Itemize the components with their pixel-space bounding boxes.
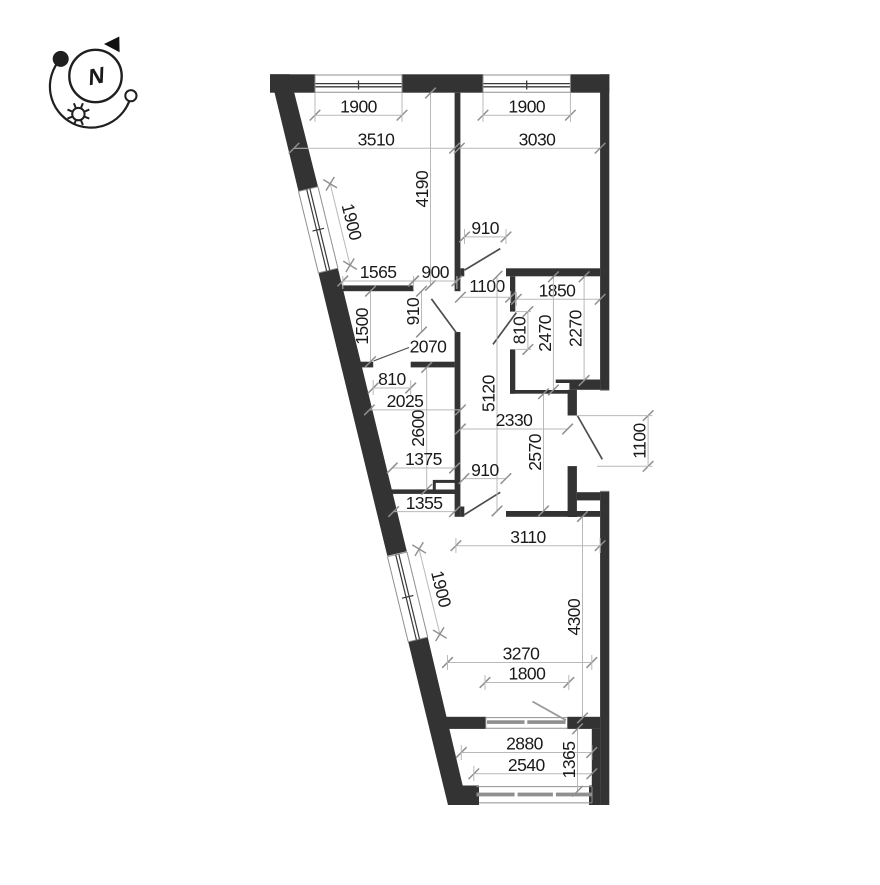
svg-text:1900: 1900 [338, 201, 366, 242]
svg-text:2070: 2070 [410, 337, 448, 357]
svg-text:2470: 2470 [535, 314, 555, 352]
svg-text:810: 810 [378, 369, 406, 389]
svg-text:1100: 1100 [630, 422, 650, 458]
svg-text:3510: 3510 [358, 129, 396, 149]
svg-text:1900: 1900 [508, 96, 546, 116]
svg-text:1900: 1900 [340, 96, 378, 116]
svg-text:1365: 1365 [559, 742, 579, 779]
svg-text:3270: 3270 [503, 644, 541, 664]
svg-text:2570: 2570 [525, 433, 545, 471]
svg-text:1375: 1375 [405, 449, 442, 469]
svg-text:2540: 2540 [508, 755, 546, 775]
svg-text:2330: 2330 [496, 410, 534, 430]
svg-text:5120: 5120 [479, 374, 499, 412]
svg-text:1355: 1355 [406, 493, 443, 513]
svg-text:910: 910 [403, 297, 423, 325]
svg-text:810: 810 [509, 316, 529, 344]
svg-text:4190: 4190 [412, 170, 432, 208]
svg-text:2880: 2880 [506, 734, 544, 754]
svg-text:910: 910 [471, 460, 499, 480]
svg-text:N: N [88, 61, 104, 91]
svg-text:4300: 4300 [564, 598, 584, 636]
svg-text:3110: 3110 [510, 527, 546, 547]
svg-text:2270: 2270 [566, 309, 586, 347]
svg-text:910: 910 [471, 218, 499, 238]
svg-text:900: 900 [421, 262, 449, 282]
svg-text:3030: 3030 [519, 129, 557, 149]
svg-text:2600: 2600 [408, 409, 428, 447]
svg-text:2025: 2025 [387, 391, 424, 411]
svg-text:1800: 1800 [509, 664, 547, 684]
svg-text:1565: 1565 [360, 262, 397, 282]
svg-text:1900: 1900 [427, 569, 455, 610]
svg-text:1100: 1100 [469, 276, 505, 296]
svg-text:1500: 1500 [352, 307, 372, 345]
svg-text:1850: 1850 [539, 281, 577, 301]
